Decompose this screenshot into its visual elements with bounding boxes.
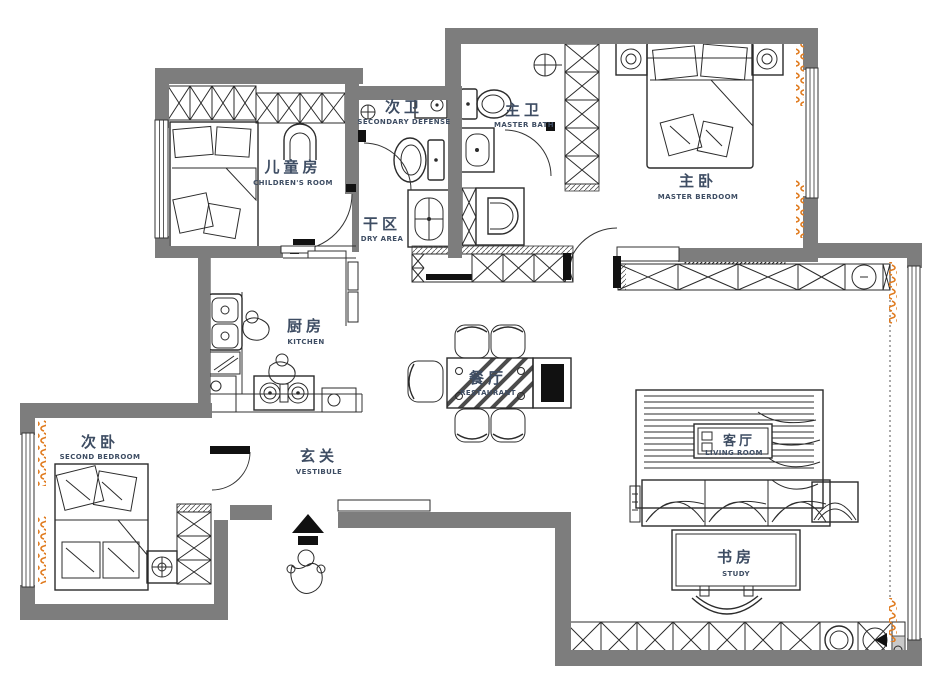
person-figure <box>287 550 325 594</box>
living-top-cabinets <box>618 258 890 290</box>
curtain-icon <box>38 516 46 584</box>
entry-arrow-icon <box>292 514 324 533</box>
curtain-icon <box>889 262 897 324</box>
master-bed <box>647 42 753 168</box>
label-vestibule: 玄关 <box>300 447 338 465</box>
doors <box>210 122 621 490</box>
window-children <box>155 120 168 238</box>
desk-chair <box>692 596 762 614</box>
door-master-suite <box>567 228 617 278</box>
pillow <box>215 127 251 157</box>
window-living <box>908 266 920 640</box>
curtain-icon <box>38 420 46 486</box>
label-living: 客厅 <box>723 433 755 449</box>
label-dry-area: 干区 <box>363 215 401 233</box>
label-second-bedroom: 次卧 <box>81 433 119 451</box>
children-wardrobe-x <box>168 86 256 120</box>
svg-text:RESTAURANT: RESTAURANT <box>460 389 516 397</box>
pillow <box>653 46 698 80</box>
svg-text:SECONDARY DEFENSE: SECONDARY DEFENSE <box>357 118 450 126</box>
floor-plan-drawing: 儿童房 CHILDREN'S ROOM 次卫 SECONDARY DEFENSE… <box>0 0 941 700</box>
lower-vanity <box>476 188 524 245</box>
washing-machine <box>825 626 853 654</box>
curtain-icon <box>796 44 804 106</box>
svg-text:SECOND BEDROOM: SECOND BEDROOM <box>60 453 141 461</box>
svg-text:STUDY: STUDY <box>722 570 750 578</box>
pillow <box>173 126 213 157</box>
label-dining: 餐厅 <box>469 369 507 387</box>
cased-opening <box>617 247 679 261</box>
svg-text:CHILDREN'S ROOM: CHILDREN'S ROOM <box>253 179 333 187</box>
person-figure <box>269 354 295 384</box>
svg-text:MASTER BERDOOM: MASTER BERDOOM <box>658 193 739 201</box>
door-master-bath <box>505 130 551 176</box>
children-bed <box>170 122 258 250</box>
curtain-icon <box>889 598 897 642</box>
svg-text:VESTIBULE: VESTIBULE <box>296 468 342 476</box>
kitchen-fixtures <box>206 258 362 412</box>
floor-plan-page: 儿童房 CHILDREN'S ROOM 次卫 SECONDARY DEFENSE… <box>0 0 941 700</box>
svg-text:MASTER BATH: MASTER BATH <box>494 121 554 129</box>
svg-text:LIVING ROOM: LIVING ROOM <box>705 449 763 457</box>
hall-cabinets <box>412 246 573 282</box>
second-bedroom-furniture <box>55 464 211 590</box>
label-master-bedroom: 主卧 <box>679 172 717 190</box>
person-figure <box>243 311 269 340</box>
sliding-door-panel <box>308 251 346 258</box>
chair <box>408 361 443 402</box>
door-second-bedroom <box>212 452 250 490</box>
windows <box>22 68 920 640</box>
svg-text:KITCHEN: KITCHEN <box>287 338 324 346</box>
master-bedroom-furniture <box>616 42 783 168</box>
window-second-bedroom <box>22 433 34 587</box>
window-master-bedroom <box>806 68 818 198</box>
chair <box>455 409 489 442</box>
fridge <box>348 262 358 290</box>
label-study: 书房 <box>717 548 755 566</box>
chair <box>491 409 525 442</box>
label-secondary-bath: 次卫 <box>385 98 423 116</box>
label-master-bath: 主卫 <box>505 101 543 119</box>
pillow <box>62 542 100 578</box>
stove <box>254 376 314 410</box>
label-kitchen: 厨房 <box>287 317 325 335</box>
master-closet <box>565 44 599 191</box>
pillow <box>701 44 748 80</box>
chair <box>284 124 316 160</box>
shoe-bench <box>338 500 430 511</box>
label-children-room: 儿童房 <box>263 158 321 176</box>
master-bath-fixtures <box>461 54 562 245</box>
dry-area-sink <box>408 190 450 247</box>
curtain-icon <box>796 180 804 238</box>
svg-text:DRY AREA: DRY AREA <box>361 235 404 243</box>
